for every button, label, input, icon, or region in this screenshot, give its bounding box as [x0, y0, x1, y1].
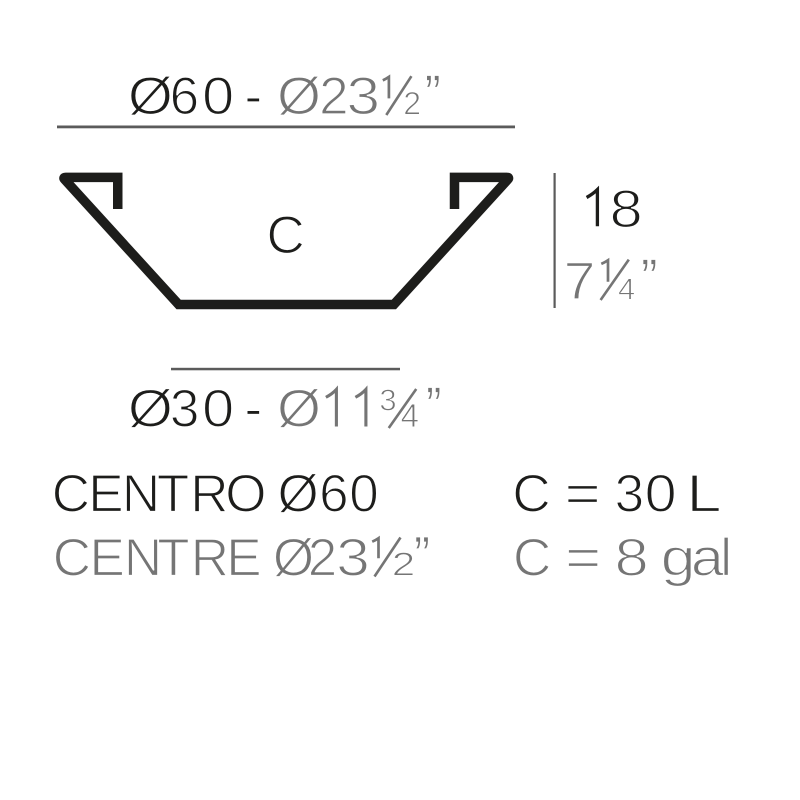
svg-text:Ø: Ø: [128, 380, 173, 439]
svg-text:”: ”: [425, 65, 441, 124]
svg-text:4: 4: [401, 397, 419, 434]
svg-text:3: 3: [336, 529, 370, 588]
svg-text:CENTREØ2: CENTREØ2: [53, 529, 338, 588]
svg-text:8: 8: [610, 180, 643, 239]
svg-text:-: -: [245, 67, 263, 126]
svg-text:8: 8: [615, 529, 649, 588]
svg-text:Ø: Ø: [128, 67, 173, 126]
svg-text:2: 2: [403, 86, 421, 122]
svg-text:”: ”: [414, 527, 430, 586]
svg-text:”: ”: [641, 249, 658, 308]
svg-text:0: 0: [202, 67, 234, 126]
svg-text:CENTROØ60: CENTROØ60: [52, 465, 379, 524]
svg-text:=: =: [565, 465, 601, 524]
svg-text:4: 4: [618, 272, 635, 307]
svg-text:=: =: [565, 529, 601, 588]
svg-text:Ø: Ø: [277, 67, 321, 126]
svg-text:2: 2: [392, 546, 416, 583]
svg-text:7: 7: [564, 252, 596, 311]
svg-text:3: 3: [379, 383, 396, 418]
svg-text:C: C: [512, 465, 550, 524]
svg-text:-: -: [245, 380, 263, 439]
svg-text:C: C: [513, 529, 551, 588]
svg-text:3: 3: [347, 67, 381, 126]
svg-text:3: 3: [170, 380, 199, 439]
svg-text:6: 6: [170, 67, 199, 126]
svg-text:3: 3: [615, 465, 644, 524]
svg-text:2: 2: [319, 67, 348, 126]
svg-text:”: ”: [426, 377, 442, 436]
svg-text:Ø: Ø: [277, 380, 321, 439]
svg-text:L: L: [687, 465, 722, 524]
svg-text:C: C: [267, 206, 305, 265]
svg-text:0: 0: [645, 465, 677, 524]
svg-text:l: l: [720, 529, 732, 588]
svg-text:0: 0: [202, 380, 234, 439]
